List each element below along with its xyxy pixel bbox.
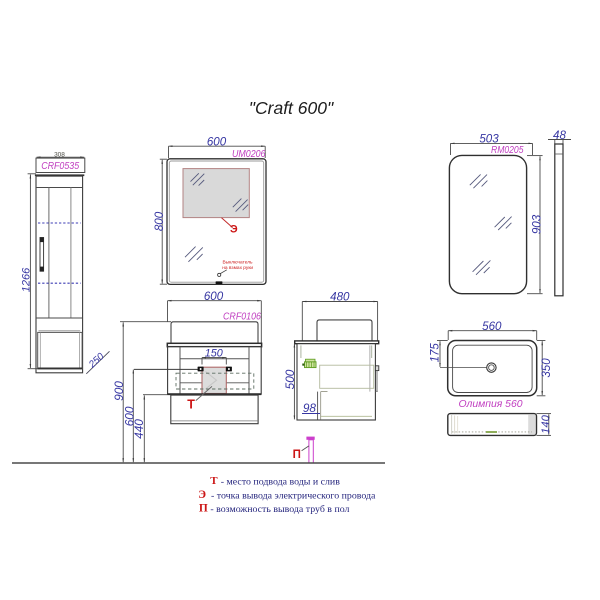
svg-text:903: 903 [531, 214, 544, 234]
svg-text:48: 48 [553, 129, 566, 142]
svg-text:П: П [293, 449, 301, 461]
svg-text:560: 560 [482, 320, 502, 333]
svg-text:98: 98 [303, 401, 317, 415]
svg-text:600: 600 [207, 135, 227, 148]
svg-text:Олимпия 560: Олимпия 560 [459, 399, 523, 410]
svg-text:- точка вывода электрического: - точка вывода электрического провода [211, 491, 376, 502]
svg-text:- место подвода воды и слив: - место подвода воды и слив [221, 476, 340, 487]
svg-text:RM0205: RM0205 [491, 145, 524, 156]
svg-text:Э: Э [198, 489, 206, 501]
svg-text:на взмах руки: на взмах руки [222, 266, 253, 271]
svg-text:308: 308 [54, 152, 65, 159]
svg-text:Э: Э [230, 224, 238, 236]
svg-text:600: 600 [204, 290, 224, 303]
svg-text:Т: Т [210, 475, 218, 487]
svg-text:500: 500 [283, 369, 297, 389]
svg-text:CRF0535: CRF0535 [41, 161, 79, 172]
svg-text:440: 440 [132, 419, 146, 439]
svg-text:175: 175 [430, 343, 442, 363]
svg-text:Выключатель: Выключатель [222, 259, 253, 265]
svg-text:140: 140 [540, 414, 552, 433]
svg-text:350: 350 [541, 358, 553, 378]
svg-text:Т: Т [187, 398, 195, 412]
svg-text:CRF0106: CRF0106 [223, 311, 261, 322]
svg-text:- возможность вывода труб в по: - возможность вывода труб в пол [210, 504, 349, 515]
svg-text:1266: 1266 [21, 267, 33, 292]
svg-text:900: 900 [112, 381, 126, 401]
svg-text:"Craft 600": "Craft 600" [249, 98, 334, 118]
svg-text:150: 150 [205, 348, 223, 360]
svg-text:800: 800 [153, 211, 166, 231]
svg-text:503: 503 [479, 133, 499, 146]
svg-text:П: П [199, 503, 208, 515]
svg-text:480: 480 [330, 291, 350, 304]
